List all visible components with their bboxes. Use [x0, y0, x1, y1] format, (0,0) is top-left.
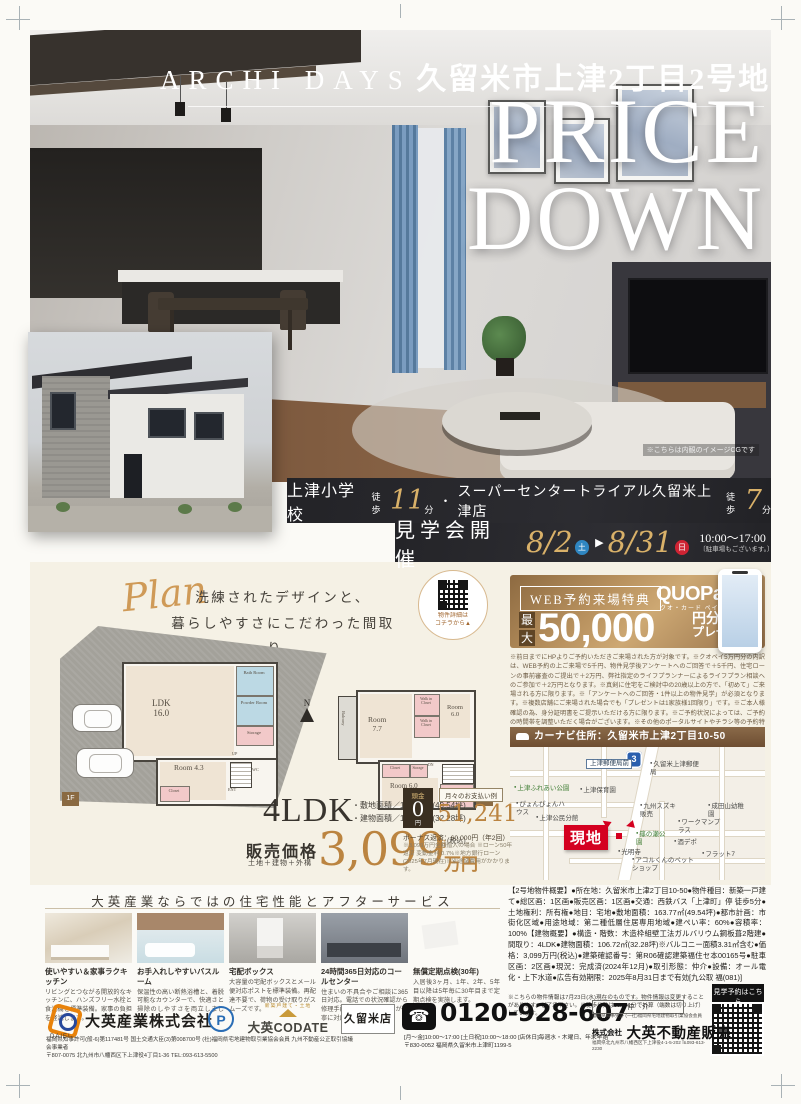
floor-tag-1f: 1F	[62, 792, 79, 806]
walk-label: 徒歩	[726, 490, 743, 523]
storage-label: Storage	[237, 730, 271, 735]
map-label-park2: 篠の瀬公園	[636, 831, 668, 847]
trim-mark	[400, 1086, 401, 1100]
building-2f-upper: Room7.7 Walk in Closet Walk in Closet Ro…	[356, 690, 476, 764]
daiei-logo-inner	[59, 1013, 77, 1031]
pendant-light	[175, 102, 185, 116]
parking-note: 〔駐車場もございます。〕	[699, 546, 771, 554]
down-payment-unit: 円	[403, 818, 433, 827]
closet-2f-label: Closet	[383, 766, 407, 771]
window	[148, 408, 186, 438]
codate-logo: 新築戸建て・土地 大英CODATE	[242, 1002, 334, 1036]
car-parking-1	[72, 704, 122, 732]
map-label-flat7: フラット7	[702, 851, 735, 859]
codate-name: 大英CODATE	[242, 1017, 334, 1036]
map-label-nursery: 上津保育園	[580, 787, 616, 795]
walk-label: 徒歩	[371, 490, 388, 523]
blue-curtain	[392, 125, 418, 373]
bathroom-photo	[137, 913, 224, 963]
payment-note: ※3,099万円全額借入の場合 ※ローン50年返済 変動金利 0.7%※地方銀行…	[403, 842, 515, 874]
event-time: 10:00〜17:00	[699, 531, 771, 545]
wic2-label: Walk in Closet	[415, 719, 437, 728]
coffee-table	[442, 392, 592, 450]
entrance-label: ENT	[228, 788, 236, 793]
balcony-label: Balcony	[341, 711, 346, 726]
store-address: 〒830-0052 福岡県久留米市上津町1199-5	[404, 1040, 512, 1049]
phone-screen	[722, 575, 758, 647]
map-label-suzuki: 九州スズキ販売	[640, 803, 682, 819]
table-leg	[288, 310, 292, 350]
service-title: 使いやすい＆家事ラクキッチン	[45, 967, 132, 987]
delivery-box-photo	[229, 913, 316, 963]
compass: N	[296, 698, 318, 722]
building-1f: LDK16.0 Bath Room Powder Room Storage	[122, 662, 278, 762]
map-label-postoffice-stop: 上津郵便局前	[586, 759, 632, 769]
map-label-petshop: アコルくんのペットショップ	[632, 857, 698, 873]
trim-mark	[781, 6, 782, 30]
map-road	[602, 747, 606, 817]
down-payment-value: 0	[403, 800, 433, 818]
down-payment-box: 頭金 0 円	[403, 788, 433, 828]
max-char-1: 最	[519, 612, 535, 628]
property-detail-qr-code[interactable]	[436, 578, 470, 612]
event-title: 見学会開催	[395, 514, 516, 572]
room-60-top-label: Room6.0	[442, 704, 468, 719]
trim-mark	[6, 1085, 30, 1086]
license-line2: 〒807-0075 北九州市八幡西区下上津役4丁目1-36 TEL:093-61…	[46, 1052, 356, 1060]
phone-icon: ☎	[402, 1003, 436, 1030]
max-label: 最 大	[519, 612, 535, 646]
entrance-door	[124, 454, 142, 498]
map-label-temple: 光明寺	[618, 849, 641, 857]
stairs-up	[230, 762, 252, 788]
trim-mark	[400, 4, 401, 18]
call-center-photo	[321, 913, 408, 963]
house-roof-icon	[279, 1009, 297, 1017]
floor-plan-1f: LDK16.0 Bath Room Powder Room Storage Ro…	[60, 626, 332, 808]
service-card: お手入れしやすいバスルーム 保温性の高い断熱浴槽と、着脱可能なカウンターで、快適…	[137, 913, 224, 1024]
storage-room	[236, 726, 274, 746]
trim-mark	[19, 1074, 20, 1098]
compass-needle	[300, 708, 314, 722]
blue-curtain	[444, 128, 466, 370]
stairs-down	[442, 764, 474, 784]
dining-table	[158, 298, 308, 310]
map-road	[510, 771, 765, 776]
bush	[178, 504, 192, 514]
qr-note-line2: コチラから▲	[419, 621, 487, 629]
trim-mark	[771, 19, 795, 20]
map-label-kindergarten: 成田山幼稚園	[708, 803, 744, 819]
trim-mark	[19, 6, 20, 30]
television	[628, 278, 768, 374]
ldk-label: LDK16.0	[152, 698, 171, 719]
room-43-label: Room 4.3	[174, 764, 204, 773]
qr-note-line1: 物件詳細は	[419, 613, 487, 621]
ldk-room	[126, 666, 234, 756]
store-badge: 久留米店	[341, 1004, 395, 1034]
codate-sub: 新築戸建て・土地	[242, 1002, 334, 1009]
photo-caption: ※こちらは内観のイメージCGです	[643, 444, 759, 456]
map-header: カーナビ住所：久留米市上津2丁目10-50	[510, 727, 765, 747]
site-marker: 現地	[564, 825, 608, 850]
access-spot-1: 上津小学校	[287, 477, 365, 525]
kitchen-photo	[45, 913, 132, 963]
service-title: 24時間365日対応のコールセンター	[321, 967, 408, 987]
trim-mark	[781, 1074, 782, 1098]
plant	[482, 316, 526, 362]
books	[500, 412, 540, 420]
price-down-line1: PRICE	[467, 88, 765, 175]
walk-minutes-1: 11	[390, 487, 424, 514]
sunday-badge: 日	[675, 540, 690, 555]
bath-label: Bath Room	[237, 670, 271, 675]
window	[194, 412, 224, 440]
powder-label: Powder Room	[237, 700, 271, 705]
price-down-headline: PRICE DOWN	[467, 88, 765, 263]
web-reservation-campaign: WEB予約来場特典 QUOPay クオ・カード ペイ 最 大 50,000 円分…	[510, 575, 765, 648]
compass-n: N	[296, 698, 318, 708]
smartphone-mockup	[718, 569, 762, 653]
service-title: 宅配ボックス	[229, 967, 316, 977]
map-label-postoffice: 久留米上津郵便局	[650, 761, 702, 777]
building-1f-wing: Room 4.3 Closet ENT WC UP	[156, 758, 278, 806]
map-label-workman: ワークマンプラス	[678, 819, 724, 835]
broker-badge: 仲介	[592, 1000, 684, 1014]
access-map: カーナビ住所：久留米市上津2丁目10-50 3 上津郵便局前 久留米上津郵便局 …	[510, 727, 765, 880]
price-down-line2: DOWN	[467, 175, 765, 262]
services-rule	[45, 908, 500, 909]
service-title: お手入れしやすいバスルーム	[137, 967, 224, 987]
up-label: UP	[232, 752, 237, 757]
dining-chair	[280, 290, 306, 330]
access-banner: 上津小学校 徒歩 11 分 ・ スーパーセンタートライアル久留米上津店 徒歩 7…	[287, 478, 771, 523]
bush	[56, 502, 70, 512]
service-card: 宅配ボックス 大容量の宅配ボックスとメール便対応ポストを標準装備。再配達不要で、…	[229, 913, 316, 1015]
sales-company-address: 福岡県北九州市八幡西区下上津役4-1-5-202 ℡093-613-2230	[592, 1040, 707, 1051]
map-label-hall: 上津公民分館	[536, 815, 578, 823]
service-title: 無償定期点検(30年)	[413, 967, 500, 977]
closet-label: Closet	[162, 789, 186, 794]
brand-name: ARCHI DAYS	[160, 65, 412, 95]
car-parking-2	[76, 748, 134, 778]
daiei-logo: DAIEI	[50, 1006, 80, 1036]
sales-license: 福岡県知事免許 (一社)福岡県宅地建物取引業協会会員	[592, 1013, 704, 1019]
bush	[228, 502, 242, 512]
pendant-light	[221, 108, 231, 122]
privacy-mark: P	[208, 1006, 234, 1032]
storage-2f-label: Storage	[411, 766, 425, 770]
separator-dot: ・	[439, 492, 451, 509]
wc-label: WC	[252, 768, 259, 773]
bonus-payment: ボーナス返済：60,000円（年2回）	[403, 832, 518, 842]
kitchen-counter	[118, 270, 343, 282]
company-name: 大英産業株式会社	[85, 1010, 213, 1031]
price-includes: 土地＋建物＋外構	[248, 858, 312, 868]
plant-pot	[496, 358, 514, 376]
room-77-label: Room7.7	[368, 716, 386, 733]
trim-mark	[6, 19, 30, 20]
event-banner: 見学会開催 8/2 土 ▶ 8/31 日 10:00〜17:00 〔駐車場もござ…	[395, 523, 771, 562]
house-exterior-photo	[28, 332, 272, 532]
site-point	[616, 833, 622, 839]
walk-minutes-2: 7	[745, 487, 762, 514]
monthly-label: 月々のお支払い例	[439, 788, 503, 802]
sales-company-prefix: 株式会社	[592, 1028, 622, 1037]
property-detail-qr-circle: 物件詳細は コチラから▲	[418, 570, 488, 640]
flyer-page: ARCHI DAYS 久留米市上津2丁目2号地 PRICE DOWN ※こちらは…	[0, 0, 801, 1104]
map-label-depot: 酒デポ	[674, 839, 697, 847]
window	[50, 392, 76, 430]
saturday-badge: 土	[575, 540, 590, 555]
license-line1: 福岡県知事許可(般-6)第117481号 国土交通大臣(3)第008700号 (…	[46, 1036, 356, 1052]
company-license: 福岡県知事許可(般-6)第117481号 国土交通大臣(3)第008700号 (…	[46, 1036, 356, 1060]
monthly-amount: 51,241	[437, 801, 517, 827]
trim-mark	[771, 1085, 795, 1086]
walk-unit: 分	[762, 503, 771, 523]
sheer-curtain	[418, 128, 444, 368]
dn-label: DN	[428, 763, 433, 767]
property-overview: 【2号地物件概要】●所在地：久留米市上津2丁目10-50●物件種目：新築一戸建て…	[508, 886, 766, 983]
max-char-2: 大	[519, 630, 535, 646]
plan-copy-line1: 洗練されたデザインと、	[168, 585, 398, 611]
qr-note: 物件詳細は コチラから▲	[419, 613, 487, 628]
inspection-photo	[413, 913, 500, 963]
campaign-amount: 50,000	[538, 606, 654, 651]
car-icon	[516, 733, 529, 740]
event-time-block: 10:00〜17:00 〔駐車場もございます。〕	[699, 531, 771, 553]
balcony: Balcony	[338, 696, 358, 760]
map-label-park1: 上津ふれあい公園	[514, 785, 570, 793]
event-end-date: 8/31	[608, 528, 673, 557]
map-body: 3 上津郵便局前 久留米上津郵便局 上津ふれあい公園 ぴょんぴょんハウス 上津公…	[510, 747, 765, 880]
event-start-date: 8/2	[526, 528, 573, 557]
service-card: 無償定期点検(30年) 入居後3ヶ月、1年、2年、5年目以降は5年毎に30年目ま…	[413, 913, 500, 1006]
date-range-arrow: ▶	[595, 536, 603, 549]
wic1-label: Walk in Closet	[415, 697, 437, 706]
phone-notch	[732, 571, 748, 574]
